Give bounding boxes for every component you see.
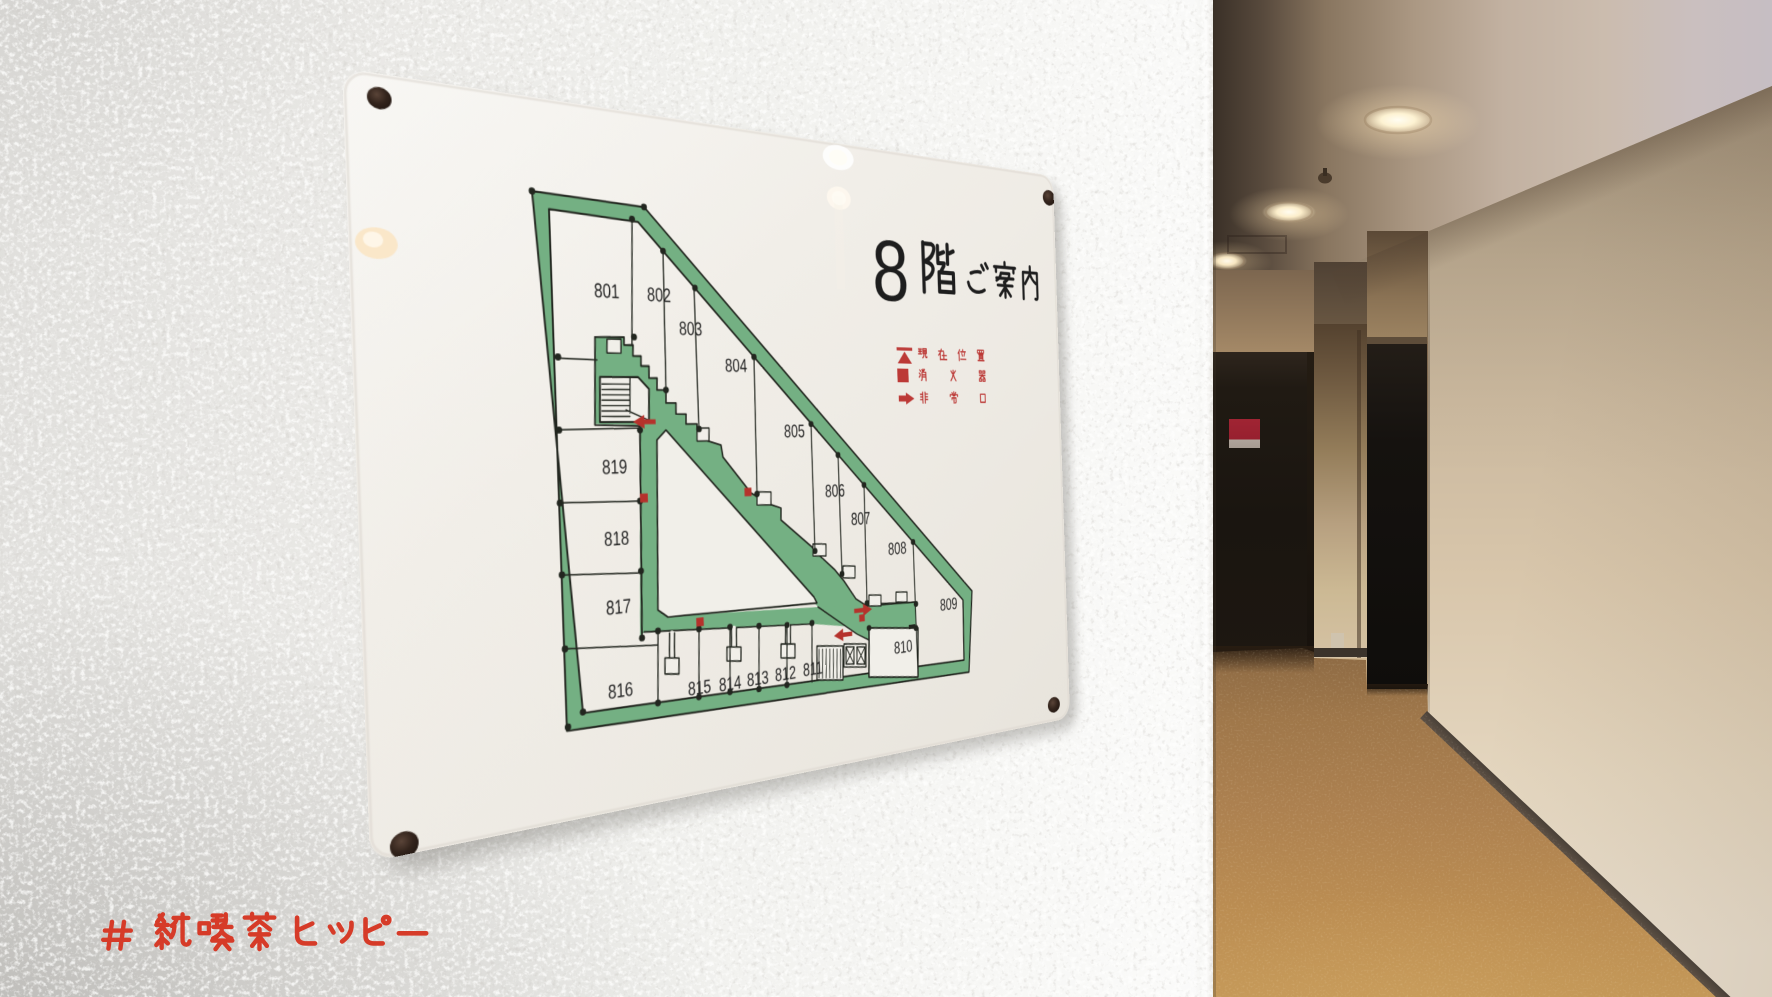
svg-text:802: 802 — [647, 283, 672, 307]
svg-text:814: 814 — [719, 671, 742, 696]
svg-text:810: 810 — [894, 636, 913, 658]
svg-text:813: 813 — [747, 666, 769, 690]
svg-text:815: 815 — [688, 675, 712, 700]
svg-text:818: 818 — [604, 526, 630, 551]
svg-text:804: 804 — [725, 354, 748, 376]
svg-text:807: 807 — [851, 508, 871, 529]
svg-text:812: 812 — [775, 661, 797, 685]
svg-text:817: 817 — [606, 594, 632, 619]
svg-text:809: 809 — [940, 593, 958, 614]
svg-text:811: 811 — [803, 657, 823, 680]
svg-text:819: 819 — [602, 455, 628, 479]
svg-text:803: 803 — [679, 317, 703, 340]
svg-text:801: 801 — [594, 278, 620, 302]
svg-text:805: 805 — [784, 420, 805, 441]
svg-text:816: 816 — [608, 677, 634, 703]
svg-text:806: 806 — [825, 480, 845, 501]
svg-text:808: 808 — [888, 538, 907, 559]
svg-text:8: 8 — [870, 221, 910, 320]
